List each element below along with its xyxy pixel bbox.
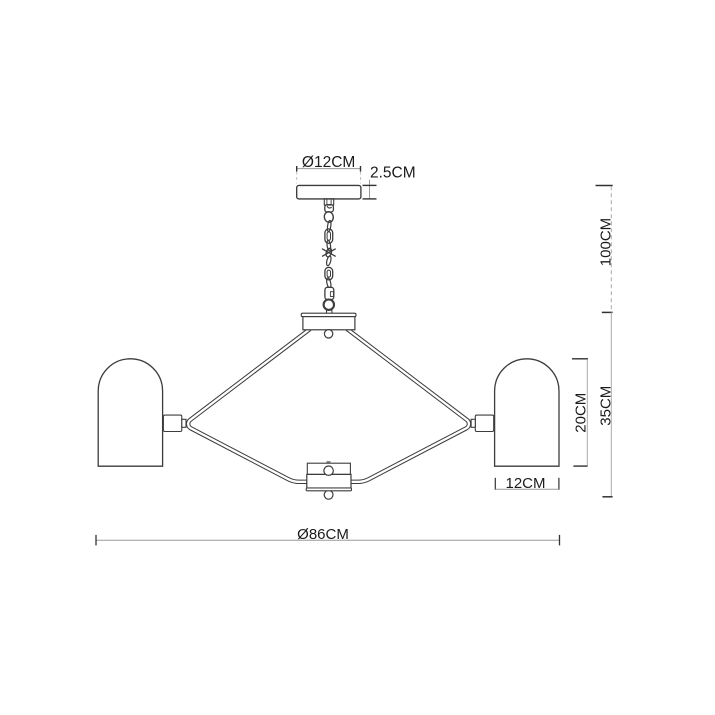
svg-text:35CM: 35CM <box>597 386 614 426</box>
svg-text:20CM: 20CM <box>572 393 589 433</box>
svg-text:Ø86CM: Ø86CM <box>297 526 349 543</box>
svg-text:100CM: 100CM <box>597 218 614 266</box>
svg-text:12CM: 12CM <box>505 475 545 492</box>
svg-text:Ø12CM: Ø12CM <box>302 154 355 171</box>
svg-text:2.5CM: 2.5CM <box>370 165 416 182</box>
